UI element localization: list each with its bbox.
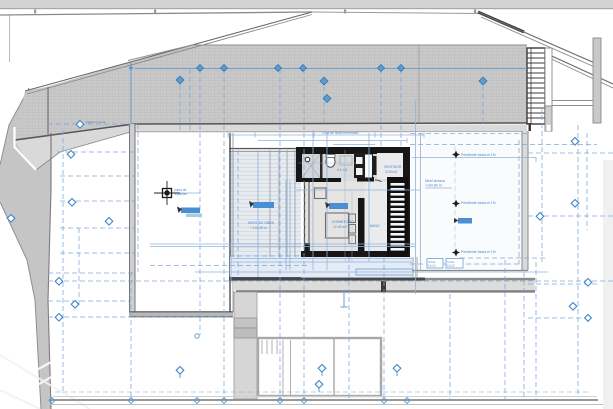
svg-text:+103.80 m: +103.80 m	[425, 184, 442, 188]
svg-text:12.40 m2: 12.40 m2	[333, 225, 347, 229]
svg-text:VESTIDOR: VESTIDOR	[384, 165, 402, 169]
svg-text:4.1 m2: 4.1 m2	[337, 168, 347, 172]
svg-text:+ 104.30 m: + 104.30 m	[250, 226, 267, 230]
svg-text:bajante pluvial: bajante pluvial	[86, 120, 106, 124]
svg-text:DORMITORIO: DORMITORIO	[332, 220, 354, 224]
svg-text:Nivel terraza: Nivel terraza	[425, 179, 445, 183]
svg-text:NIVEL DE OBRA: NIVEL DE OBRA	[248, 221, 275, 225]
svg-text:Pendiente hacia el 1%: Pendiente hacia el 1%	[461, 153, 496, 157]
svg-text:Pendiente hacia el 1%: Pendiente hacia el 1%	[461, 250, 496, 254]
svg-text:Pendiente hacia el 1%: Pendiente hacia el 1%	[461, 201, 496, 205]
svg-text:12x12: 12x12	[447, 264, 455, 268]
svg-text:12x12: 12x12	[428, 264, 436, 268]
svg-text:replanteo: replanteo	[174, 192, 188, 196]
svg-text:Cota de Nivel terminado: Cota de Nivel terminado	[322, 131, 358, 135]
svg-text:BANO: BANO	[370, 224, 380, 228]
svg-text:3.20 m2: 3.20 m2	[385, 170, 397, 174]
